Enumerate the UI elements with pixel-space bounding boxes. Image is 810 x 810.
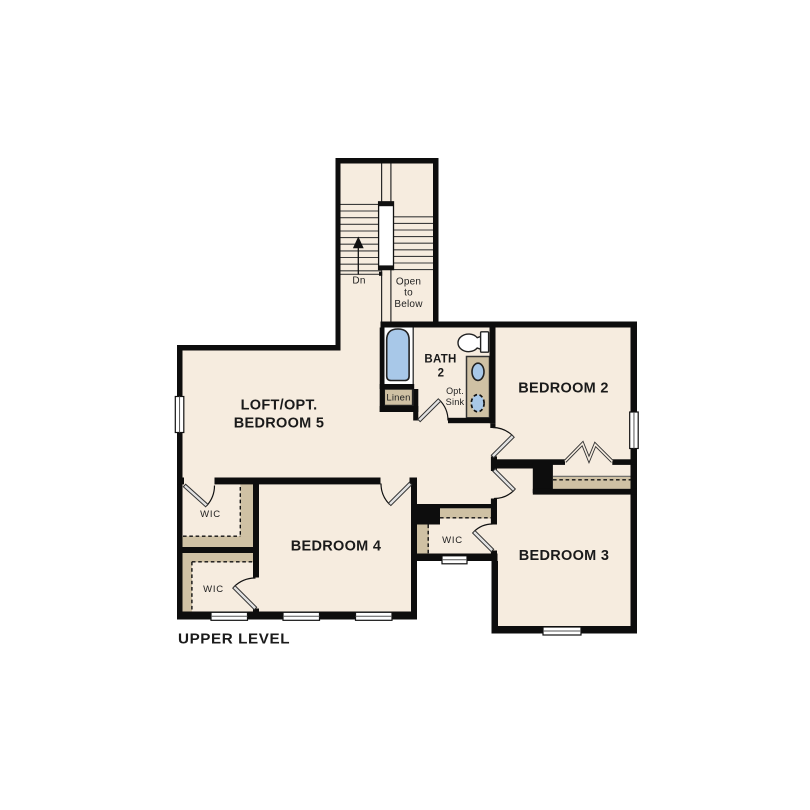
svg-text:2: 2 — [438, 368, 445, 380]
svg-text:WIC: WIC — [203, 584, 224, 595]
svg-text:BEDROOM 3: BEDROOM 3 — [519, 548, 610, 564]
svg-text:Below: Below — [394, 299, 423, 310]
svg-text:Opt.: Opt. — [446, 386, 464, 396]
svg-text:BEDROOM 5: BEDROOM 5 — [234, 416, 325, 432]
svg-text:Linen: Linen — [386, 393, 410, 404]
svg-text:LOFT/OPT.: LOFT/OPT. — [241, 398, 318, 414]
svg-text:to: to — [404, 288, 413, 299]
svg-text:BATH: BATH — [424, 354, 456, 366]
svg-text:BEDROOM 2: BEDROOM 2 — [518, 381, 609, 397]
svg-text:Sink: Sink — [446, 397, 465, 407]
svg-text:WIC: WIC — [200, 509, 221, 520]
svg-text:Dn: Dn — [352, 276, 365, 287]
svg-text:WIC: WIC — [442, 535, 463, 546]
svg-text:Open: Open — [396, 276, 421, 287]
svg-text:UPPER LEVEL: UPPER LEVEL — [178, 631, 290, 648]
svg-text:BEDROOM 4: BEDROOM 4 — [291, 539, 382, 555]
